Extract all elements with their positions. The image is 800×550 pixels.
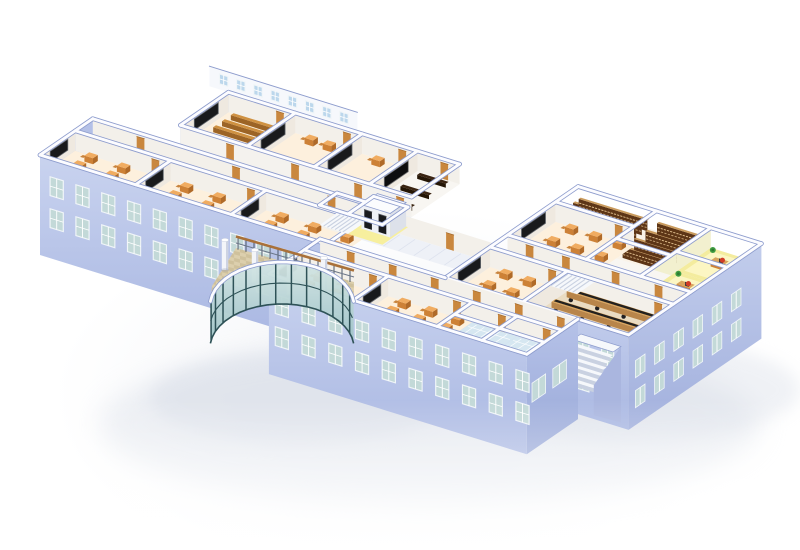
ground-fade <box>0 400 800 550</box>
building-3d-render <box>0 0 800 550</box>
building-render-stage <box>0 0 800 550</box>
lobby-column <box>221 238 229 272</box>
